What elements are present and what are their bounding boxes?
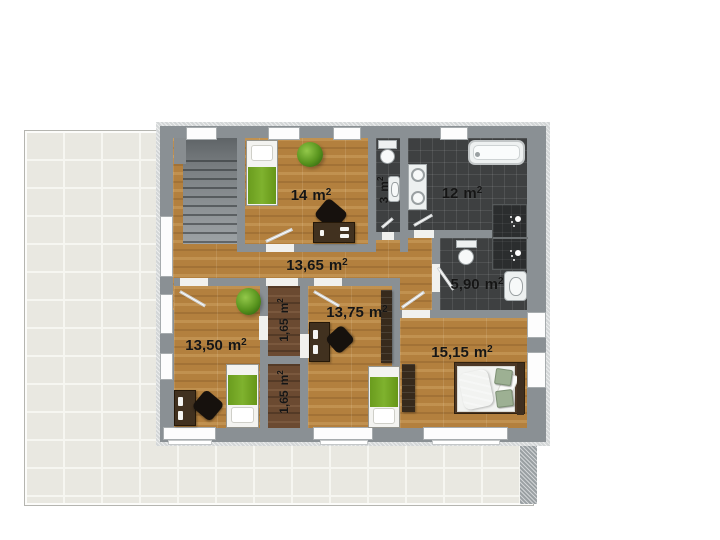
wall (400, 138, 408, 252)
terrace-wall-stub (520, 442, 537, 504)
room-label-wc: 3m2 (374, 150, 394, 230)
window (440, 127, 468, 140)
window (423, 427, 508, 440)
door-threshold (414, 230, 434, 238)
room-label-bedroom-left: 13,50m2 (166, 335, 266, 355)
window (527, 312, 546, 338)
room-label-shower-room: 5,90m2 (427, 274, 527, 294)
window (313, 427, 373, 440)
double-bed (454, 362, 525, 414)
bathtub-icon (468, 140, 525, 165)
window (160, 294, 173, 334)
room-label-bedroom-middle: 13,75m2 (307, 302, 407, 322)
desk (313, 222, 355, 243)
room-label-bedroom-top: 14m2 (271, 185, 351, 205)
door-threshold (266, 244, 294, 252)
wall-left (160, 126, 174, 442)
wall (294, 244, 376, 252)
wall (237, 244, 266, 252)
window (333, 127, 361, 140)
single-bed (226, 364, 259, 428)
floor-plan: 14m2 3m2 12m2 13,65m2 5,90m2 13,50m2 1,6… (0, 0, 720, 540)
single-bed (368, 366, 400, 428)
window-sill (432, 440, 500, 445)
wall-right (527, 126, 546, 442)
wardrobe (402, 364, 415, 412)
window (160, 353, 173, 380)
plant-icon (236, 288, 261, 315)
shower-cabin-icon (492, 204, 527, 270)
wall (434, 230, 492, 238)
window-sill (320, 440, 368, 445)
staircase-steps (183, 160, 237, 244)
window (268, 127, 300, 140)
wall (430, 310, 527, 318)
room-label-bedroom-right: 15,15m2 (412, 342, 512, 362)
staircase-landing (174, 138, 186, 164)
door-threshold (300, 334, 309, 358)
wall (208, 278, 266, 286)
window (527, 352, 546, 388)
room-label-closet-lower: 1,65m2 (274, 342, 294, 442)
wall (432, 238, 440, 264)
door-threshold (180, 278, 208, 286)
door-threshold (382, 232, 394, 240)
window (163, 427, 216, 440)
window-sill (168, 440, 212, 445)
wall (342, 278, 400, 286)
wall (298, 278, 314, 286)
wall (237, 138, 245, 252)
door-threshold (314, 278, 342, 286)
headboard (517, 363, 524, 415)
plant-icon (297, 142, 323, 167)
window (186, 127, 217, 140)
wardrobe (381, 290, 392, 363)
room-label-bathroom: 12m2 (422, 183, 502, 203)
toilet-icon (456, 240, 477, 266)
window (160, 216, 173, 277)
